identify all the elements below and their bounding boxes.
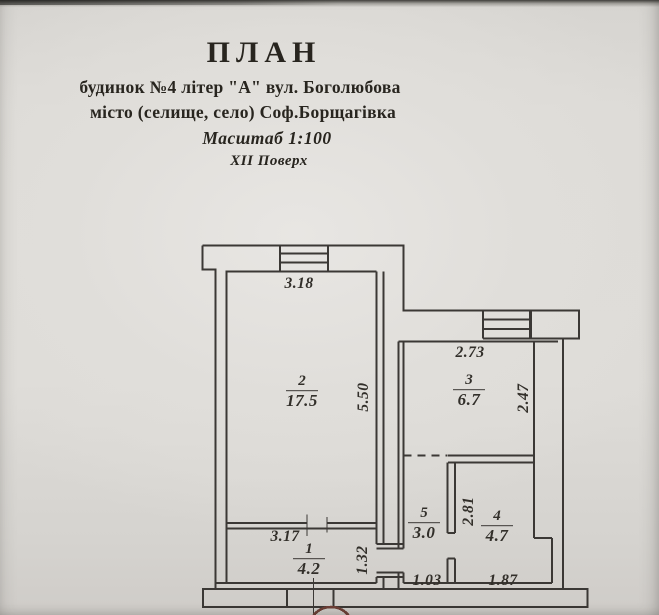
door-ticks <box>307 515 327 537</box>
room-3-label: 3 6.7 <box>453 373 485 409</box>
scanned-floor-plan-page: ПЛАН будинок №4 літер "А" вул. Боголюбов… <box>0 0 659 615</box>
room-2-label: 2 17.5 <box>286 374 318 410</box>
room-1-label: 1 4.2 <box>293 542 325 578</box>
room-3-area: 6.7 <box>453 390 485 408</box>
dim-room2-width: 3.18 <box>284 275 313 293</box>
room-2-area: 17.5 <box>286 391 318 409</box>
dim-room4-width: 1.87 <box>488 572 517 590</box>
room-5-number: 5 <box>408 506 440 523</box>
room-1-number: 1 <box>293 542 325 559</box>
room-4-number: 4 <box>481 509 513 526</box>
room-3-number: 3 <box>453 373 485 390</box>
window-room3 <box>483 311 531 339</box>
room-1-area: 4.2 <box>293 559 325 577</box>
dim-room3-width: 2.73 <box>455 344 484 362</box>
room-5-area: 3.0 <box>408 523 440 541</box>
room-4-area: 4.7 <box>481 526 513 544</box>
stamp-arc <box>310 607 352 615</box>
room-2-number: 2 <box>286 374 318 391</box>
dim-room1-depth: 1.32 <box>354 545 372 574</box>
bottom-slab-band <box>203 589 588 607</box>
dim-room4-depth: 2.81 <box>460 496 478 525</box>
dim-room5-width: 1.03 <box>412 572 441 590</box>
walls <box>203 246 588 608</box>
window-room2 <box>280 246 328 272</box>
room-5-label: 5 3.0 <box>408 506 440 542</box>
dim-room2-depth: 5.50 <box>355 382 373 411</box>
room-4-label: 4 4.7 <box>481 509 513 545</box>
corner-pilaster <box>530 311 579 339</box>
dim-room3-depth: 2.47 <box>515 383 533 412</box>
floor-plan-drawing <box>0 0 659 615</box>
